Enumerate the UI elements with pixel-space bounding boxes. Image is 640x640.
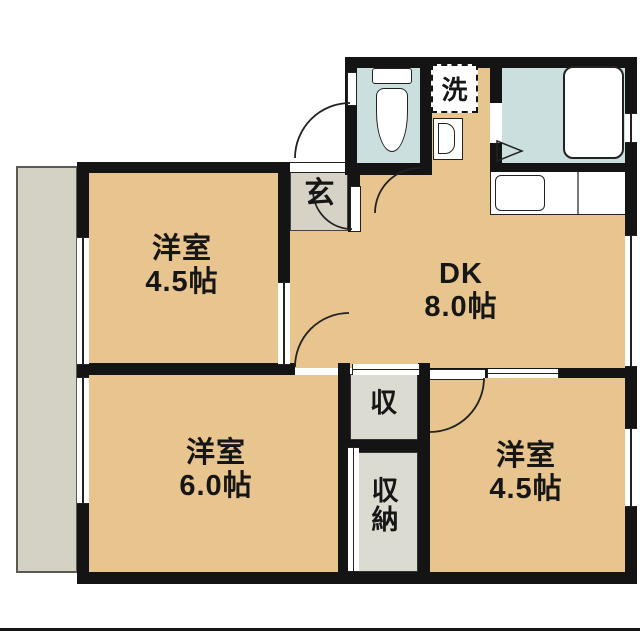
room-se-name: 洋室 — [436, 440, 616, 473]
floor-plan: 洋室 4.5帖 DK 8.0帖 洋室 6.0帖 洋室 4.5帖 玄 洗 収 収納 — [0, 0, 640, 640]
front-doorway — [290, 162, 345, 173]
wall-bath-bottom — [490, 163, 637, 172]
balcony — [16, 166, 78, 573]
room-se-area: 4.5帖 — [436, 473, 616, 506]
bath-door-gap — [490, 103, 502, 143]
room-nw-area: 4.5帖 — [92, 266, 272, 299]
toilet-tank-icon — [372, 68, 412, 84]
dk-area: 8.0帖 — [371, 291, 551, 324]
dk-name: DK — [371, 258, 551, 291]
closet-door-strip — [348, 447, 359, 572]
label-washer: 洗 — [432, 76, 478, 104]
label-room-sw: 洋室 6.0帖 — [126, 437, 306, 503]
front-door-arc — [295, 103, 350, 158]
wall-room-nw-right — [278, 162, 290, 282]
label-entrance: 玄 — [292, 178, 348, 210]
wall-bottom — [77, 572, 637, 584]
wall-mid-horizontal — [77, 363, 295, 375]
wall-closet-right — [418, 363, 430, 584]
label-storage: 収納 — [368, 477, 402, 535]
bathtub-icon — [563, 66, 624, 159]
label-room-se: 洋室 4.5帖 — [436, 440, 616, 506]
window-room-sw — [77, 377, 89, 504]
room-se-doorway — [430, 369, 485, 380]
entrance-inner-door-leaf — [350, 186, 361, 232]
room-sw-name: 洋室 — [126, 437, 306, 470]
sliding-door-room-se — [487, 369, 559, 378]
window-room-se — [625, 428, 637, 507]
wall-closet-mid — [350, 440, 430, 452]
room-nw-name: 洋室 — [92, 233, 272, 266]
wall-top-room-nw — [77, 162, 300, 173]
closet-top-opening — [352, 364, 420, 375]
window-bathroom — [625, 113, 637, 143]
washbasin-bowl-icon — [438, 123, 455, 154]
label-dk: DK 8.0帖 — [371, 258, 551, 324]
kitchen-sink — [495, 175, 545, 211]
label-closet: 収 — [350, 389, 418, 418]
label-room-nw: 洋室 4.5帖 — [92, 233, 272, 299]
baseline — [0, 628, 640, 631]
sliding-door-room-nw — [278, 282, 290, 365]
window-dk — [625, 235, 637, 367]
window-toilet — [347, 72, 357, 106]
room-sw-area: 6.0帖 — [126, 470, 306, 503]
window-room-nw — [77, 237, 89, 365]
